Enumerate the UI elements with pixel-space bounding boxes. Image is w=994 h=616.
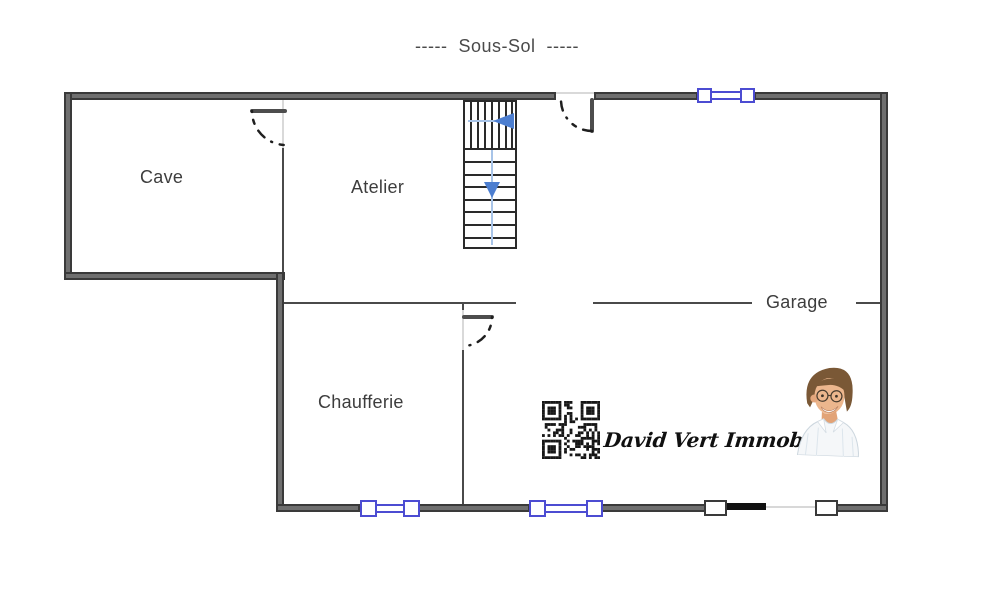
- window-icon: [529, 500, 603, 517]
- garage-door-track: [766, 506, 815, 508]
- room-label-cave: Cave: [140, 167, 183, 188]
- agent-portrait: [792, 361, 865, 457]
- garage-door-panel: [727, 503, 766, 510]
- window-icon: [697, 88, 755, 103]
- window-icon: [360, 500, 420, 517]
- garage-door-post: [815, 500, 838, 516]
- garage-door-post: [704, 500, 727, 516]
- floor-plan-canvas: ----- Sous-Sol -----: [0, 0, 994, 616]
- door-swings-layer: [0, 0, 994, 616]
- room-label-atelier: Atelier: [351, 177, 404, 198]
- agent-portrait-illustration: [792, 361, 865, 457]
- door-swing-icon: [463, 317, 492, 346]
- qr-code: [542, 401, 600, 459]
- room-label-chaufferie: Chaufferie: [318, 392, 404, 413]
- room-label-garage: Garage: [766, 292, 828, 313]
- door-swing-icon: [252, 111, 285, 145]
- door-swing-icon: [561, 100, 592, 131]
